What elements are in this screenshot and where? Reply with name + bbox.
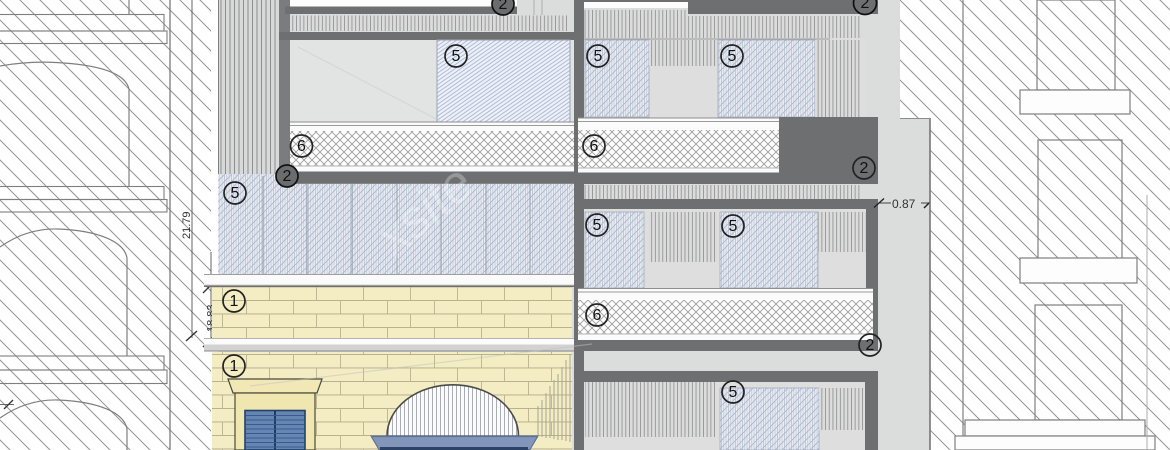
- svg-text:1: 1: [230, 358, 239, 375]
- svg-text:2: 2: [861, 0, 870, 12]
- svg-text:6: 6: [590, 138, 599, 155]
- svg-text:2: 2: [499, 0, 508, 13]
- svg-text:5: 5: [231, 185, 240, 202]
- svg-text:5: 5: [728, 48, 737, 65]
- svg-text:5: 5: [452, 48, 461, 65]
- svg-text:5: 5: [593, 217, 602, 234]
- svg-text:2: 2: [866, 337, 875, 354]
- svg-text:2: 2: [860, 160, 869, 177]
- svg-text:5: 5: [729, 218, 738, 235]
- svg-text:0.87: 0.87: [892, 197, 916, 211]
- svg-text:6: 6: [593, 307, 602, 324]
- svg-text:1: 1: [230, 293, 239, 310]
- svg-text:6: 6: [297, 138, 306, 155]
- svg-text:5: 5: [594, 48, 603, 65]
- svg-text:21.79: 21.79: [181, 211, 193, 239]
- svg-text:2: 2: [283, 168, 292, 185]
- svg-text:5: 5: [729, 384, 738, 401]
